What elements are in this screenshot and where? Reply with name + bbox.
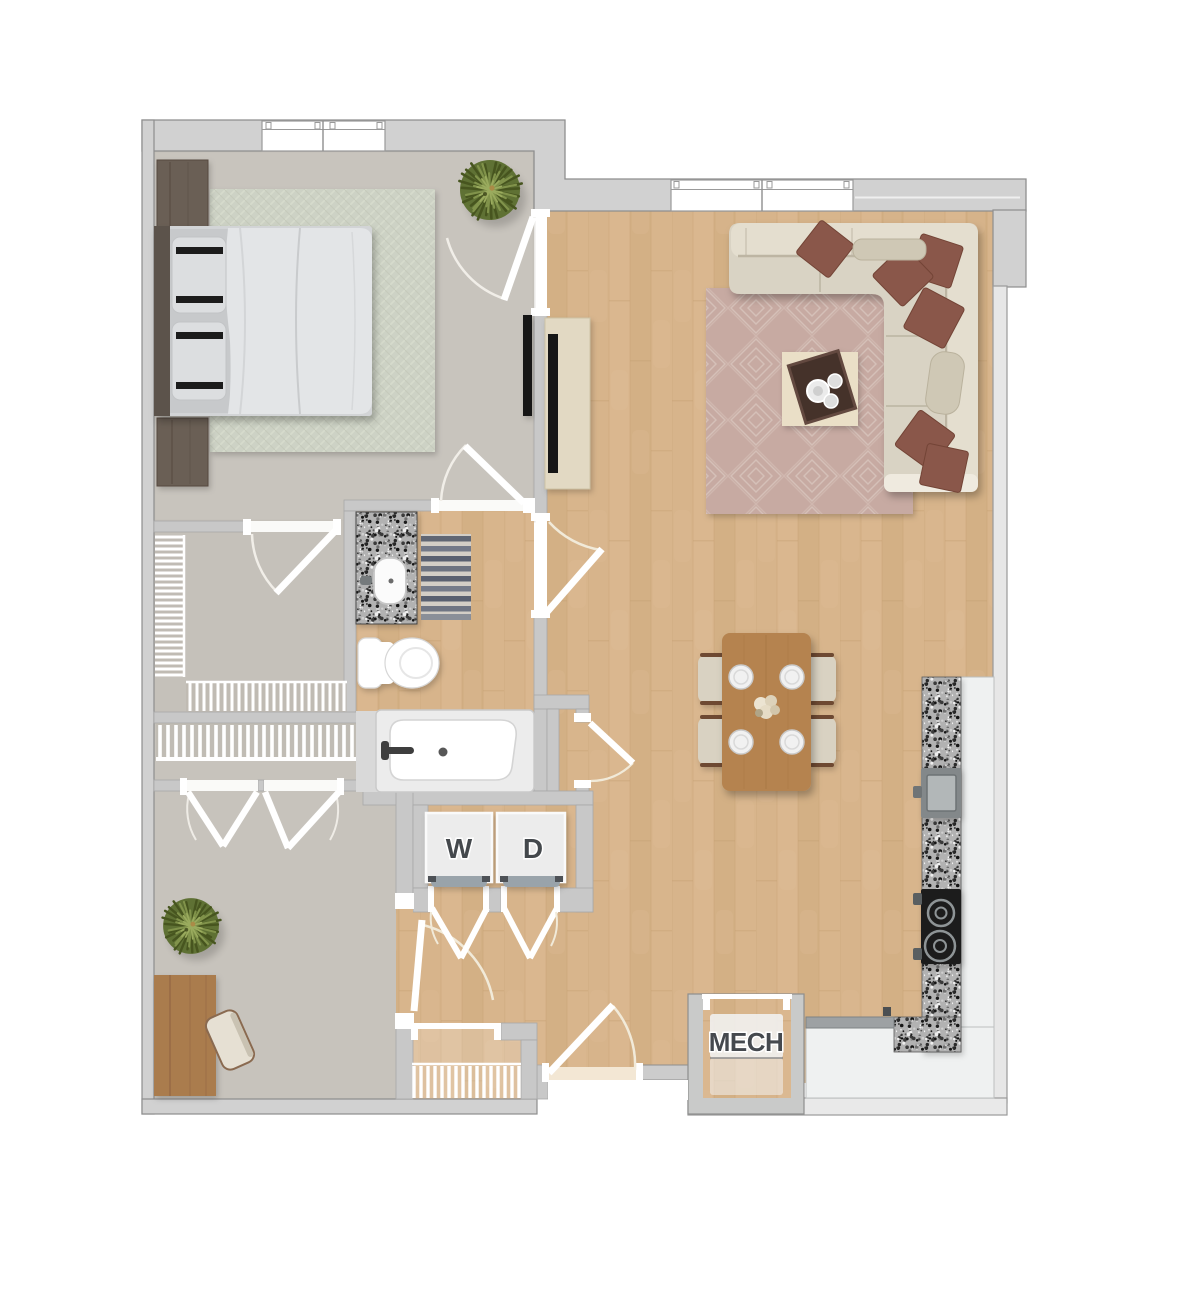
svg-text:D: D xyxy=(523,833,543,864)
svg-text:MECH: MECH xyxy=(709,1027,784,1057)
svg-text:W: W xyxy=(446,833,473,864)
